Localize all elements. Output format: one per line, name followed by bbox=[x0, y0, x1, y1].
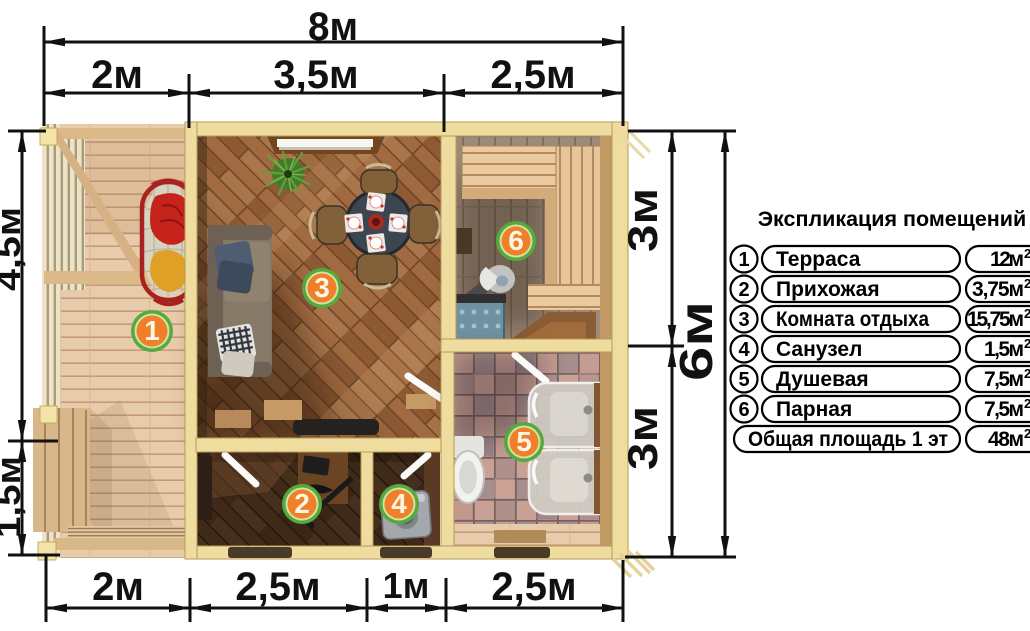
svg-text:4: 4 bbox=[738, 339, 750, 361]
svg-text:2: 2 bbox=[1024, 396, 1030, 411]
svg-text:Терраса: Терраса bbox=[776, 248, 861, 271]
svg-text:4,5м: 4,5м bbox=[0, 207, 28, 291]
svg-text:6м: 6м bbox=[670, 301, 722, 381]
svg-text:2: 2 bbox=[1024, 306, 1030, 321]
svg-text:4: 4 bbox=[391, 488, 407, 519]
svg-text:Экспликация помещений: Экспликация помещений bbox=[758, 207, 1026, 231]
svg-text:48м: 48м bbox=[988, 428, 1024, 451]
svg-text:2,5м: 2,5м bbox=[491, 565, 576, 609]
svg-text:12м: 12м bbox=[990, 248, 1024, 271]
svg-text:Душевая: Душевая bbox=[776, 368, 869, 391]
svg-text:2м: 2м bbox=[91, 53, 143, 97]
svg-text:2: 2 bbox=[294, 488, 310, 519]
svg-text:Парная: Парная bbox=[776, 398, 852, 421]
svg-text:3: 3 bbox=[738, 309, 749, 331]
svg-text:6: 6 bbox=[508, 225, 524, 256]
svg-text:1: 1 bbox=[144, 315, 160, 346]
svg-text:6: 6 bbox=[738, 399, 749, 421]
svg-text:2: 2 bbox=[1024, 336, 1030, 351]
svg-text:2м: 2м bbox=[92, 565, 144, 609]
svg-text:5: 5 bbox=[738, 369, 749, 391]
svg-text:15,75м: 15,75м bbox=[967, 308, 1024, 331]
svg-text:3: 3 bbox=[314, 272, 330, 303]
svg-text:7,5м: 7,5м bbox=[984, 398, 1024, 421]
svg-text:2: 2 bbox=[1024, 246, 1030, 261]
svg-text:1м: 1м bbox=[383, 565, 430, 606]
svg-text:5: 5 bbox=[516, 426, 532, 457]
svg-text:Комната отдыха: Комната отдыха bbox=[776, 308, 929, 331]
svg-text:1,5м: 1,5м bbox=[0, 456, 28, 538]
svg-text:2: 2 bbox=[1024, 426, 1030, 441]
svg-text:Прихожая: Прихожая bbox=[776, 278, 880, 301]
svg-text:8м: 8м bbox=[308, 5, 358, 49]
svg-text:1,5м: 1,5м bbox=[984, 338, 1024, 361]
svg-text:3,5м: 3,5м bbox=[273, 53, 358, 97]
svg-text:Общая площадь 1 эт: Общая площадь 1 эт bbox=[748, 428, 948, 451]
svg-text:7,5м: 7,5м bbox=[984, 368, 1024, 391]
svg-text:3м: 3м bbox=[619, 406, 666, 470]
svg-text:Санузел: Санузел bbox=[776, 338, 862, 361]
svg-text:2: 2 bbox=[1024, 366, 1030, 381]
svg-text:3м: 3м bbox=[619, 188, 666, 252]
svg-text:2,5м: 2,5м bbox=[490, 53, 575, 97]
svg-text:3,75м: 3,75м bbox=[972, 278, 1024, 301]
svg-text:2: 2 bbox=[738, 279, 749, 301]
svg-text:1: 1 bbox=[738, 249, 749, 271]
svg-text:2,5м: 2,5м bbox=[235, 565, 320, 609]
svg-text:2: 2 bbox=[1024, 276, 1030, 291]
